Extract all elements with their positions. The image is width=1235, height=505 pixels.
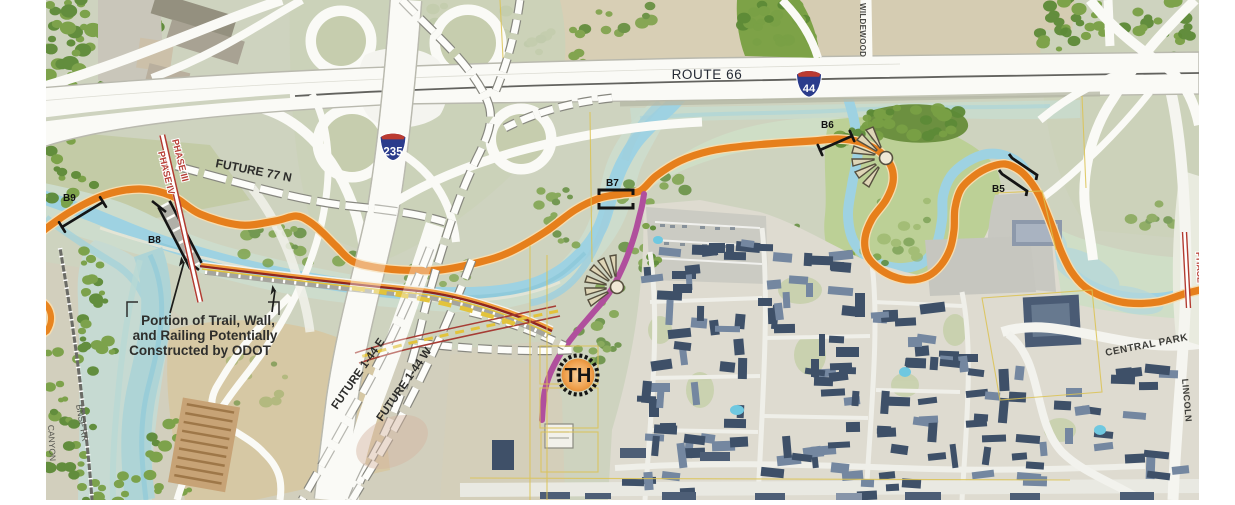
- svg-text:B8: B8: [148, 235, 161, 246]
- svg-text:B6: B6: [821, 120, 834, 131]
- svg-text:CANYON: CANYON: [46, 425, 58, 462]
- svg-text:WILDEWOOD: WILDEWOOD: [858, 3, 867, 57]
- svg-text:B7: B7: [606, 178, 619, 189]
- svg-text:and Railing Potentially: and Railing Potentially: [133, 328, 278, 343]
- svg-text:Constructed by ODOT: Constructed by ODOT: [129, 343, 272, 358]
- svg-text:Portion of Trail, Wall,: Portion of Trail, Wall,: [141, 313, 275, 328]
- svg-text:ROUTE 66: ROUTE 66: [672, 67, 743, 82]
- svg-text:44: 44: [803, 83, 816, 95]
- svg-text:B5: B5: [992, 184, 1005, 195]
- svg-text:B9: B9: [63, 193, 76, 204]
- svg-text:235: 235: [383, 146, 403, 158]
- svg-text:TH: TH: [565, 365, 592, 387]
